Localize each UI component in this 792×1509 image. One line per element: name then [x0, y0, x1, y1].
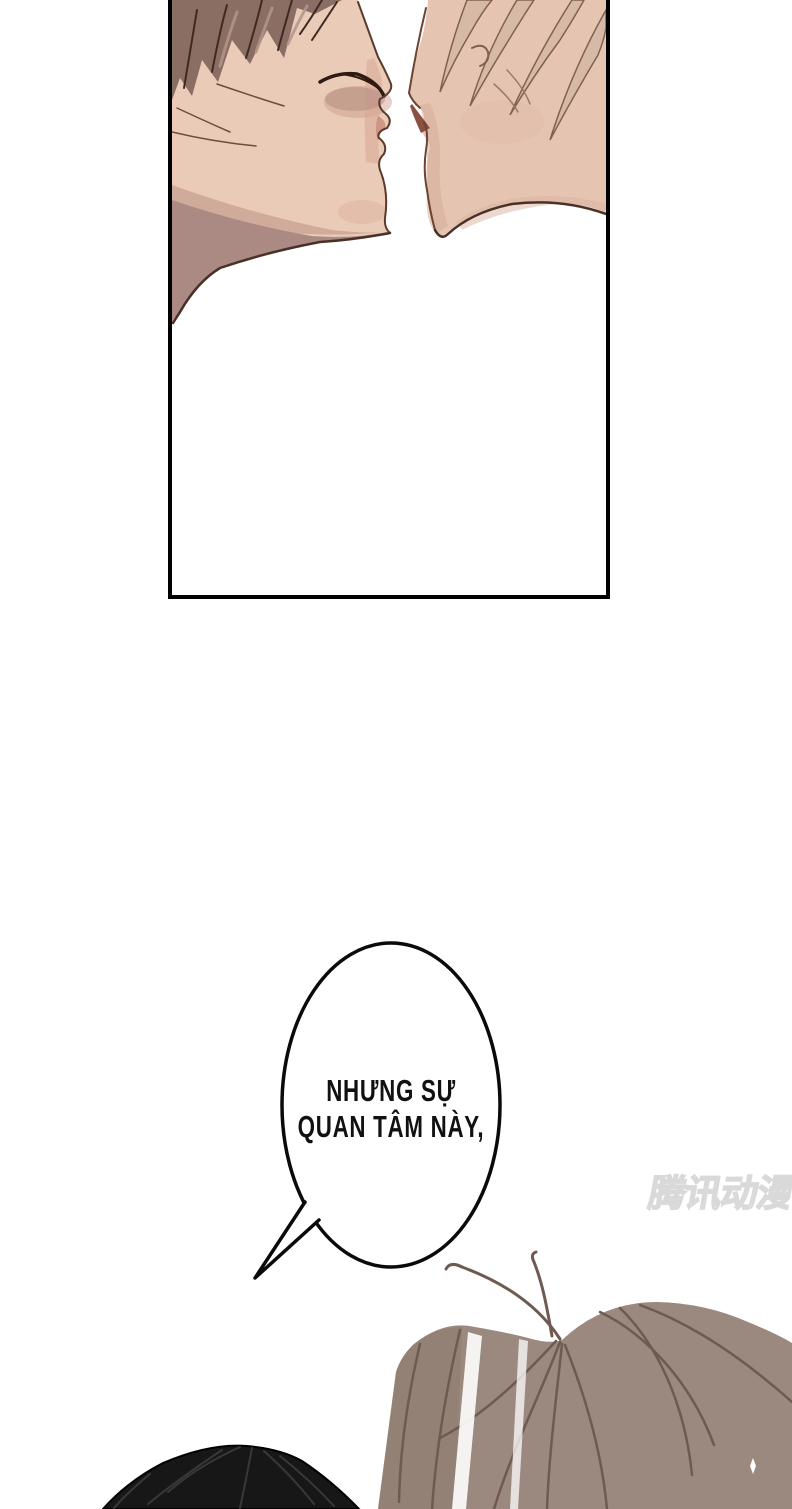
right-character-art: [409, 0, 606, 237]
dialogue-line-1: NHƯNG SỰ: [298, 1073, 485, 1109]
right-cheek-blush: [460, 100, 544, 144]
dialogue-text: NHƯNG SỰ QUAN TÂM NÀY,: [261, 1073, 520, 1145]
panel-artwork: [172, 0, 606, 595]
black-hair-head: [103, 1446, 359, 1509]
left-eye-shadow: [325, 87, 385, 111]
comic-panel: [168, 0, 610, 599]
brown-hair-left-shade: [378, 1327, 462, 1509]
black-hair-fill: [103, 1446, 359, 1509]
comic-page: NHƯNG SỰ QUAN TÂM NÀY, 腾讯动漫: [0, 0, 792, 1509]
speech-bubble-tail: [255, 1202, 319, 1278]
publisher-watermark: 腾讯动漫: [646, 1163, 792, 1213]
left-chin-shadow: [338, 200, 386, 224]
left-character-art: [172, 0, 392, 323]
dialogue-line-2: QUAN TÂM NÀY,: [298, 1109, 485, 1145]
brown-hair-head: [378, 1252, 792, 1509]
